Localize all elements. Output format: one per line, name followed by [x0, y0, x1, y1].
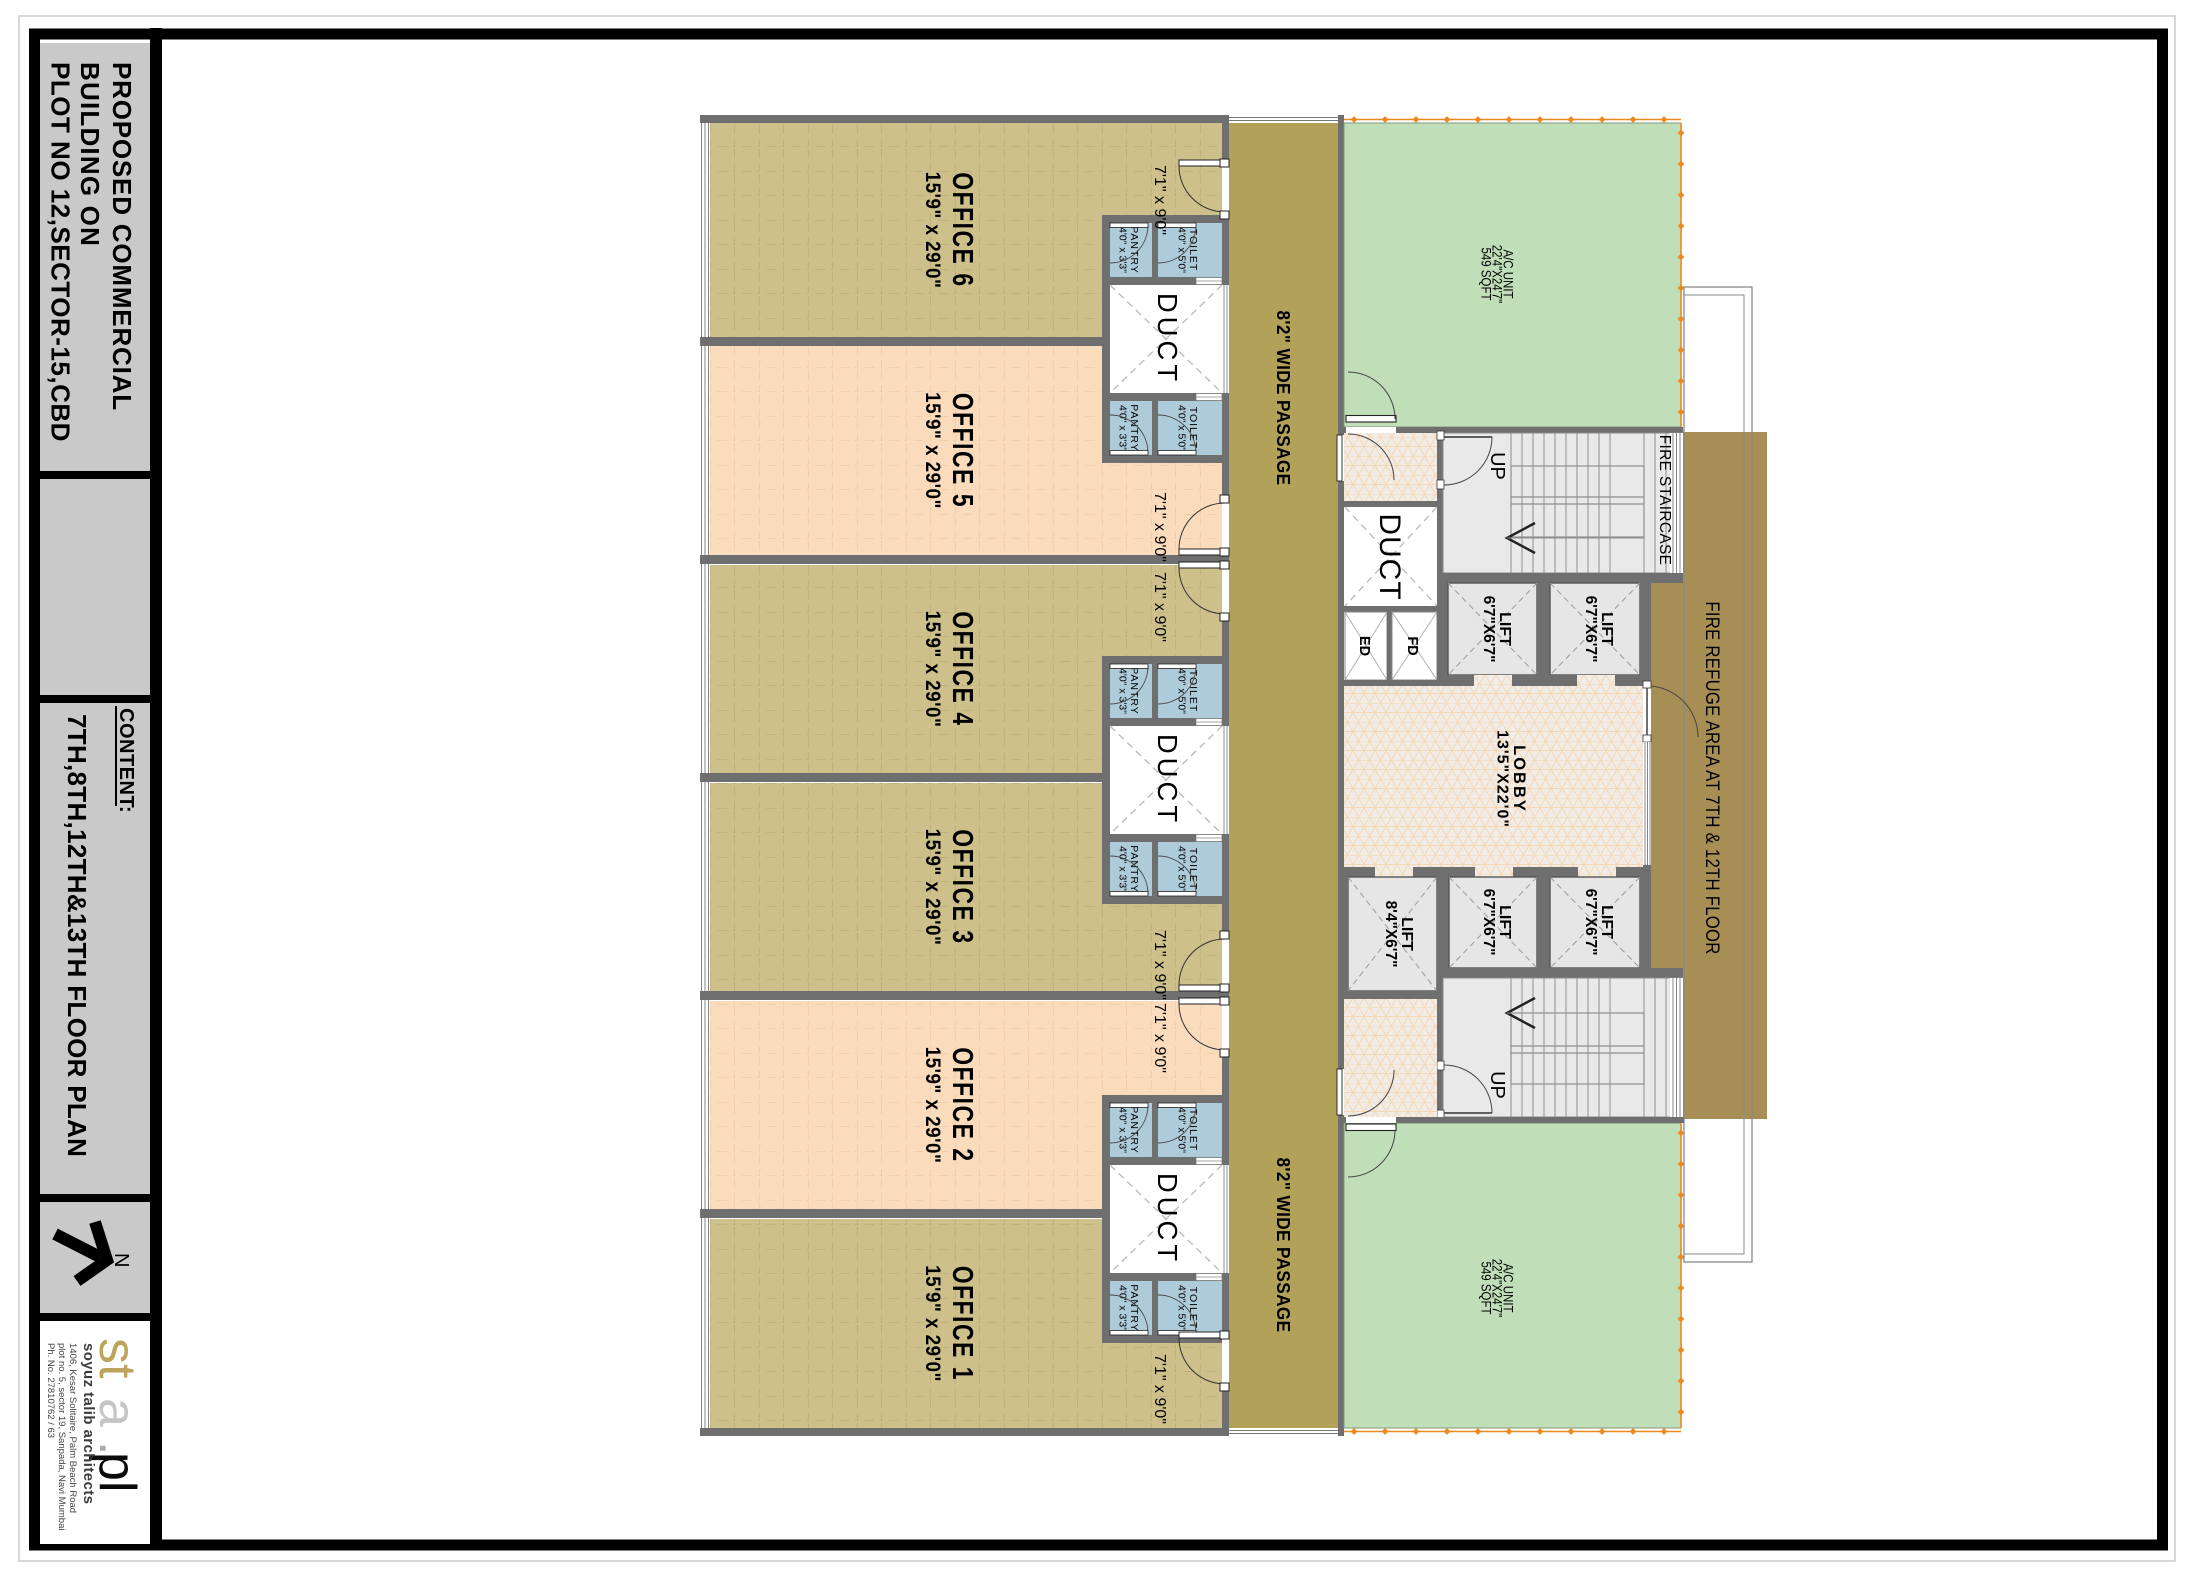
svg-text:6'7"X6'7": 6'7"X6'7" [1582, 596, 1599, 663]
svg-text:4'0" x 3'3": 4'0" x 3'3" [1117, 1285, 1129, 1331]
svg-text:PROPOSED COMMERCIAL: PROPOSED COMMERCIAL [107, 62, 137, 411]
svg-text:4'0" x 5'0": 4'0" x 5'0" [1176, 405, 1188, 451]
svg-text:DUCT: DUCT [1373, 513, 1406, 600]
svg-text:LIFT: LIFT [1496, 905, 1513, 939]
svg-text:LIFT: LIFT [1496, 612, 1513, 646]
svg-text:4'0" x 3'3": 4'0" x 3'3" [1117, 1107, 1129, 1153]
svg-text:15'9" x 29'0": 15'9" x 29'0" [921, 172, 944, 289]
svg-text:7'1" x 9'0": 7'1" x 9'0" [1151, 572, 1168, 642]
svg-text:OFFICE 1: OFFICE 1 [946, 1266, 977, 1381]
svg-text:OFFICE 4: OFFICE 4 [946, 611, 977, 726]
svg-text:OFFICE 5: OFFICE 5 [946, 393, 977, 508]
svg-text:8'4"X6'7": 8'4"X6'7" [1382, 901, 1399, 968]
svg-text:4'0" x 5'0": 4'0" x 5'0" [1176, 846, 1188, 892]
svg-text:N: N [110, 1253, 132, 1267]
svg-text:LOBBY: LOBBY [1510, 745, 1528, 813]
svg-text:OFFICE 2: OFFICE 2 [946, 1047, 977, 1162]
svg-text:6'7"X6'7": 6'7"X6'7" [1480, 889, 1497, 956]
svg-text:15'9" x 29'0": 15'9" x 29'0" [921, 1265, 944, 1382]
svg-text:4'0" x 5'0": 4'0" x 5'0" [1176, 227, 1188, 273]
svg-text:OFFICE 6: OFFICE 6 [946, 172, 977, 287]
svg-text:ED: ED [1356, 636, 1372, 656]
svg-text:soyuz talib architects: soyuz talib architects [80, 1343, 97, 1504]
svg-text:LIFT: LIFT [1398, 917, 1415, 951]
svg-text:TOILET: TOILET [1187, 670, 1199, 713]
svg-text:15'9" x 29'0": 15'9" x 29'0" [921, 829, 944, 946]
svg-text:TOILET: TOILET [1187, 1287, 1199, 1330]
svg-text:6'7"X6'7": 6'7"X6'7" [1480, 596, 1497, 663]
svg-text:4'0" x 3'3": 4'0" x 3'3" [1117, 405, 1129, 451]
svg-text:TOILET: TOILET [1187, 229, 1199, 272]
svg-text:TOILET: TOILET [1187, 407, 1199, 450]
svg-text:13'5"X22'0": 13'5"X22'0" [1494, 730, 1511, 828]
svg-text:1406, Kesar Solitaire, Palm Be: 1406, Kesar Solitaire, Palm Beach Road [67, 1343, 78, 1513]
svg-text:LIFT: LIFT [1598, 612, 1615, 646]
svg-text:CONTENT:: CONTENT: [115, 708, 137, 813]
svg-text:8'2" WIDE PASSAGE: 8'2" WIDE PASSAGE [1273, 1157, 1294, 1332]
svg-text:4'0" x 5'0": 4'0" x 5'0" [1176, 1107, 1188, 1153]
svg-text:7TH,8TH,12TH&13TH FLOOR PLAN: 7TH,8TH,12TH&13TH FLOOR PLAN [62, 714, 92, 1157]
svg-text:DUCT: DUCT [1152, 293, 1183, 385]
svg-text:plot no. 5, sector 19, Sanpada: plot no. 5, sector 19, Sanpada, Navi Mum… [56, 1343, 67, 1530]
svg-text:15'9" x 29'0": 15'9" x 29'0" [921, 611, 944, 728]
svg-text:549 SQFT: 549 SQFT [1478, 248, 1494, 301]
svg-text:LIFT: LIFT [1598, 905, 1615, 939]
svg-text:PLOT NO 12,SECTOR-15,CBD: PLOT NO 12,SECTOR-15,CBD [46, 62, 76, 442]
svg-text:7'1" x 9'0": 7'1" x 9'0" [1151, 1354, 1168, 1424]
svg-text:DUCT: DUCT [1152, 1173, 1183, 1265]
svg-text:FIRE REFUGE AREA AT 7TH & 12TH: FIRE REFUGE AREA AT 7TH & 12TH FLOOR [1702, 601, 1723, 954]
svg-text:15'9" x 29'0": 15'9" x 29'0" [921, 1047, 944, 1164]
svg-text:4'0" x 5'0": 4'0" x 5'0" [1176, 1285, 1188, 1331]
svg-text:4'0" x 3'3": 4'0" x 3'3" [1117, 227, 1129, 273]
svg-text:TOILET: TOILET [1187, 848, 1199, 891]
svg-text:7'1" x 9'0": 7'1" x 9'0" [1151, 1003, 1168, 1073]
svg-text:7'1" x 9'0": 7'1" x 9'0" [1151, 165, 1168, 235]
svg-text:FIRE STAIRCASE: FIRE STAIRCASE [1656, 435, 1673, 566]
svg-text:UP: UP [1486, 1071, 1508, 1099]
svg-text:8'2" WIDE PASSAGE: 8'2" WIDE PASSAGE [1273, 310, 1294, 485]
svg-text:UP: UP [1486, 452, 1508, 480]
svg-text:549 SQFT: 549 SQFT [1478, 1262, 1494, 1315]
svg-text:TOILET: TOILET [1187, 1109, 1199, 1152]
svg-text:6'7"X6'7": 6'7"X6'7" [1582, 889, 1599, 956]
svg-text:Ph. No. 27810762 / 63: Ph. No. 27810762 / 63 [45, 1343, 56, 1438]
svg-text:4'0" x 5'0": 4'0" x 5'0" [1176, 668, 1188, 714]
svg-text:4'0" x 3'3": 4'0" x 3'3" [1117, 846, 1129, 892]
svg-text:OFFICE 3: OFFICE 3 [946, 829, 977, 944]
svg-text:15'9" x 29'0": 15'9" x 29'0" [921, 392, 944, 509]
svg-text:4'0" x 3'3": 4'0" x 3'3" [1117, 668, 1129, 714]
svg-text:BUILDING ON: BUILDING ON [75, 62, 105, 247]
svg-text:FD: FD [1404, 636, 1420, 655]
svg-text:7'1" x 9'0": 7'1" x 9'0" [1151, 930, 1168, 1000]
svg-text:7'1" x 9'0": 7'1" x 9'0" [1151, 492, 1168, 562]
svg-text:DUCT: DUCT [1152, 734, 1183, 826]
